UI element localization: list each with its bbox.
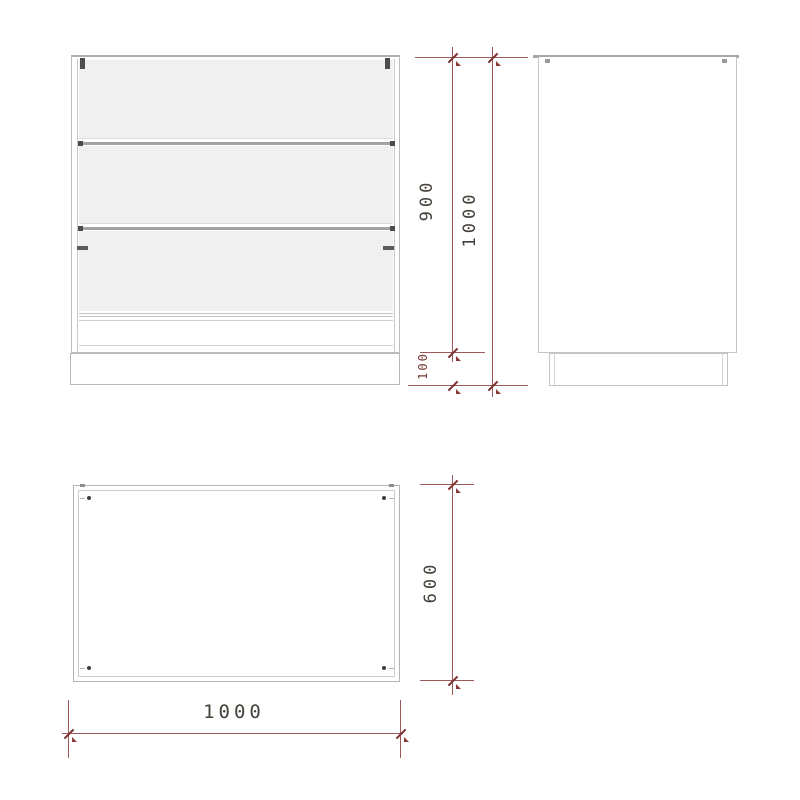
front-rail-line	[79, 313, 393, 314]
side-plinth-inner-line	[722, 354, 723, 385]
screw-icon	[382, 496, 386, 500]
dimension-line-width	[62, 733, 403, 734]
front-panel-top	[79, 60, 393, 139]
bracket-icon	[383, 246, 394, 250]
side-plinth-inner-line	[554, 354, 555, 385]
drawing-canvas: 900 1000 100 600 1000	[0, 0, 800, 800]
front-inner-frame-left	[77, 59, 78, 352]
screw-dash	[80, 668, 85, 669]
side-body-outline	[538, 57, 737, 353]
side-plinth	[549, 353, 728, 386]
screw-icon	[87, 496, 91, 500]
screw-dash	[389, 498, 394, 499]
front-plinth	[70, 353, 400, 385]
dimension-arrow-icon	[72, 737, 77, 742]
front-shelf-bar-1	[79, 142, 393, 145]
plan-inner-outline	[78, 490, 395, 677]
extension-line-600-top	[420, 484, 474, 485]
dim-label-body-height: 900	[417, 179, 437, 222]
shelf-pin-icon	[78, 141, 83, 146]
shelf-pin-icon	[390, 141, 395, 146]
front-rail-line	[79, 320, 393, 321]
plan-edge-mark	[80, 484, 85, 487]
dim-label-total-height: 1000	[460, 191, 480, 248]
front-shelf-bar-2	[79, 227, 393, 230]
dimension-arrow-icon	[496, 61, 501, 66]
front-rail-line	[79, 316, 393, 317]
plan-edge-mark	[389, 484, 394, 487]
screw-icon	[382, 666, 386, 670]
dimension-arrow-icon	[456, 684, 461, 689]
dimension-line-600	[452, 475, 453, 695]
extension-line-width-right	[400, 700, 401, 758]
screw-icon	[87, 666, 91, 670]
dimension-arrow-icon	[496, 389, 501, 394]
front-panel-bottom	[79, 231, 393, 311]
dimension-line-900	[452, 47, 453, 362]
extension-line-bottom	[408, 385, 528, 386]
shelf-pin-icon	[390, 226, 395, 231]
dim-label-depth: 600	[421, 561, 441, 604]
extension-line-top	[415, 57, 528, 58]
shelf-pin-icon	[78, 226, 83, 231]
extension-line-600-bottom	[420, 680, 474, 681]
front-rail-line	[79, 345, 393, 346]
dimension-arrow-icon	[456, 61, 461, 66]
front-inner-frame-right	[394, 59, 395, 352]
bracket-icon	[77, 246, 88, 250]
side-cap-tick	[545, 59, 550, 63]
extension-line-width-left	[68, 700, 69, 758]
front-panel-middle	[79, 146, 393, 224]
dimension-line-1000	[492, 47, 493, 397]
dimension-arrow-icon	[456, 356, 461, 361]
side-cap-tick	[722, 59, 727, 63]
dim-label-plinth-height: 100	[416, 352, 430, 380]
screw-dash	[80, 498, 85, 499]
dim-label-width: 1000	[203, 701, 265, 723]
dimension-arrow-icon	[456, 389, 461, 394]
screw-dash	[389, 668, 394, 669]
hinge-icon	[385, 58, 390, 69]
dimension-arrow-icon	[404, 737, 409, 742]
hinge-icon	[80, 58, 85, 69]
dimension-arrow-icon	[456, 488, 461, 493]
